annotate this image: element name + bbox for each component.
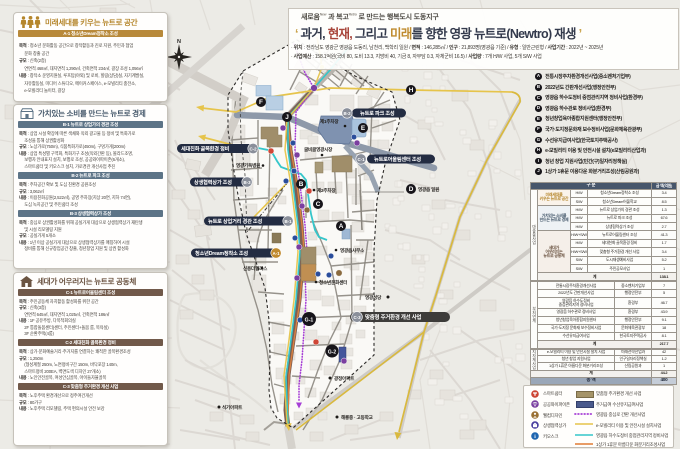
svg-text:영광읍사무소: 영광읍사무소 xyxy=(340,247,365,254)
svg-text:J: J xyxy=(285,114,289,121)
svg-text:G-1: G-1 xyxy=(305,317,314,323)
svg-text:A: A xyxy=(339,223,344,230)
svg-text:신용더힐리스: 신용더힐리스 xyxy=(243,265,268,272)
svg-text:광정아파트: 광정아파트 xyxy=(334,375,355,382)
svg-text:청소년문화센터: 청소년문화센터 xyxy=(319,279,347,286)
svg-text:D: D xyxy=(409,186,414,193)
svg-text:석기아파트: 석기아파트 xyxy=(222,404,243,411)
svg-text:영광기독병원: 영광기독병원 xyxy=(236,162,260,169)
svg-text:뉴트로 상업거리 경관 조성: 뉴트로 상업거리 경관 조성 xyxy=(208,217,262,225)
svg-text:H: H xyxy=(409,87,414,94)
svg-text:뉴트로어울림센터 조성: 뉴트로어울림센터 조성 xyxy=(374,155,421,163)
svg-text:해룡중 · 고등학교: 해룡중 · 고등학교 xyxy=(341,414,374,421)
svg-text:A-1: A-1 xyxy=(272,251,280,256)
svg-text:상생협력상가 조성: 상생협력상가 조성 xyxy=(194,178,232,186)
svg-text:청소년Dream정착소 조성: 청소년Dream정착소 조성 xyxy=(195,249,248,257)
svg-text:굴비골영광시장: 굴비골영광시장 xyxy=(304,146,333,153)
svg-text:B-2: B-2 xyxy=(343,111,351,116)
svg-text:뉴트로 파크 조성: 뉴트로 파크 조성 xyxy=(360,109,395,117)
svg-text:영광읍 일원: 영광읍 일원 xyxy=(418,186,439,193)
svg-text:F: F xyxy=(259,99,263,106)
svg-text:맞춤형 주거환경 개선 사업: 맞춤형 주거환경 개선 사업 xyxy=(365,313,421,321)
svg-text:제2주차장: 제2주차장 xyxy=(317,187,336,194)
svg-text:B-3: B-3 xyxy=(243,180,251,185)
svg-text:영광성당: 영광성당 xyxy=(365,294,382,301)
svg-text:제1주차장: 제1주차장 xyxy=(320,118,339,125)
svg-text:B: B xyxy=(299,181,304,188)
svg-text:E: E xyxy=(361,125,366,132)
svg-text:세대친화 골목환경 정비: 세대친화 골목환경 정비 xyxy=(181,145,230,153)
svg-text:C-3: C-3 xyxy=(353,315,361,320)
svg-text:C-1: C-1 xyxy=(357,157,365,162)
svg-text:B-1: B-1 xyxy=(284,219,292,224)
svg-text:C-2: C-2 xyxy=(249,147,257,152)
svg-text:G-2: G-2 xyxy=(328,349,337,355)
svg-text:C: C xyxy=(316,201,321,208)
